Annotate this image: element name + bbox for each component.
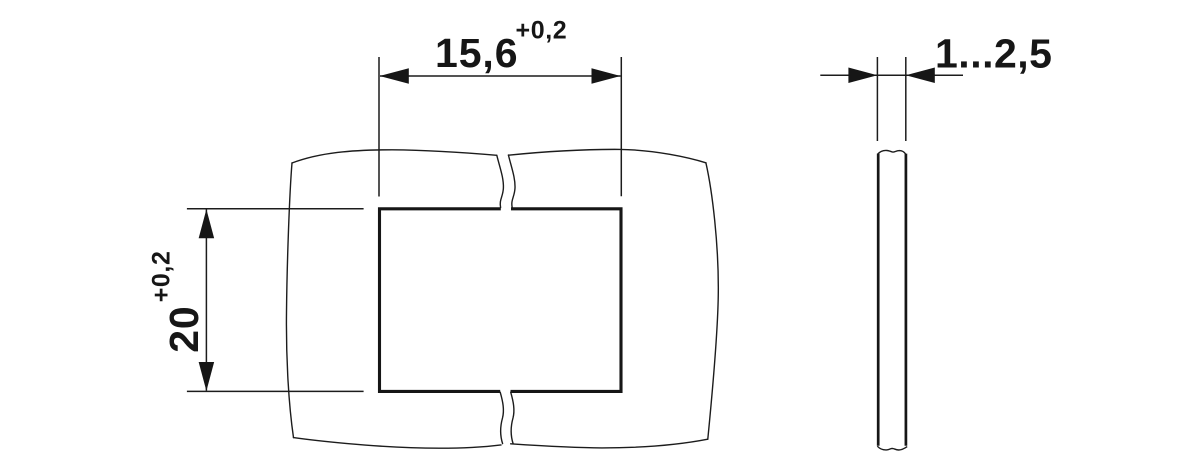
svg-text:20: 20 — [161, 305, 207, 352]
svg-text:1...2,5: 1...2,5 — [935, 31, 1052, 77]
svg-text:15,6: 15,6 — [435, 30, 518, 76]
svg-text:+0,2: +0,2 — [516, 17, 568, 45]
svg-text:+0,2: +0,2 — [148, 251, 176, 303]
